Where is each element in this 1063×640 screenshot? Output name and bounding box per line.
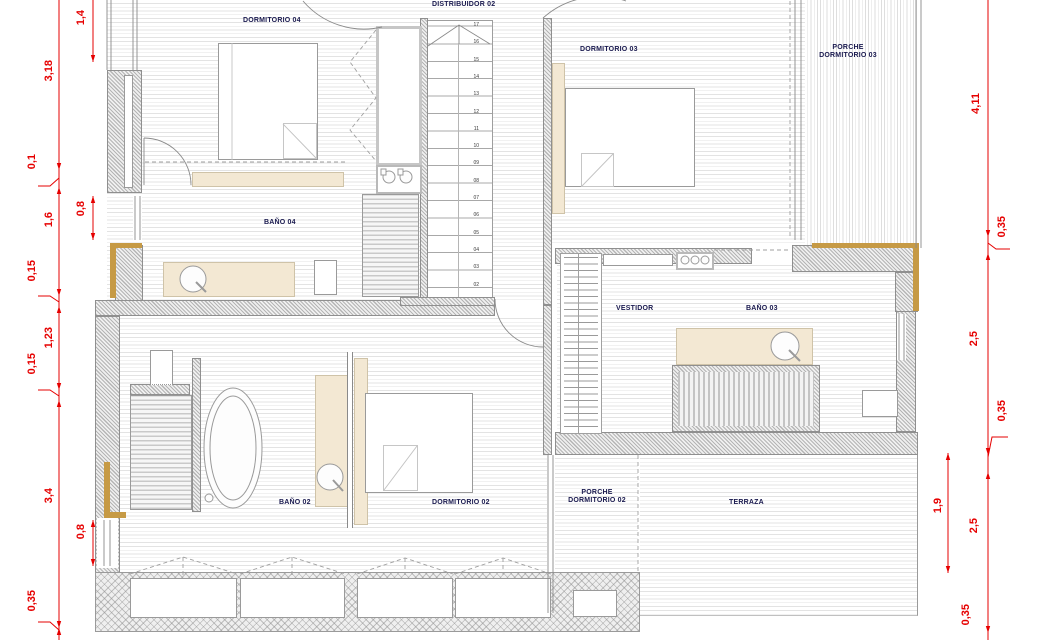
vanity-bano04 [163,262,295,297]
counter-bano03 [603,254,673,266]
dim-left-0-35: 0,35 [26,590,38,611]
floor-terraza [640,455,918,616]
stair-step-numbers: 17161514131211100908070605040302 [425,20,493,301]
stair-step-number: 12 [465,109,479,115]
stair-step-number: 05 [465,230,479,236]
bench-dormitorio04 [192,172,344,187]
label-bano03: BAÑO 03 [746,305,778,312]
wardrobe-vestidor-divider [578,253,579,434]
pillow-dormitorio02 [383,445,418,491]
dim-left-0-8a: 0,8 [75,201,87,216]
dim-left-0-1: 0,1 [26,154,38,169]
label-distribuidor02: DISTRIBUIDOR 02 [432,1,495,8]
dim-right-1-9: 1,9 [932,498,944,513]
wall-porche03-bottom [792,245,918,272]
sink-unit-stair [376,165,422,194]
wall-bano03-bottom [555,432,918,455]
stair-step-number: 02 [465,282,479,288]
label-terraza: TERRAZA [729,499,764,506]
dim-left-3-18: 3,18 [43,60,55,81]
floor-plan: 17161514131211100908070605040302 [0,0,1063,640]
toilet-bano04 [314,260,337,295]
dim-right-0-35c: 0,35 [960,604,972,625]
label-vestidor: VESTIDOR [616,305,653,312]
dim-left-0-15a: 0,15 [26,260,38,281]
shower-bano04 [362,194,419,297]
radiator-bano03 [676,252,714,270]
label-porche-dormitorio02: PORCHE DORMITORIO 02 [557,489,637,505]
shower-bano03 [678,372,814,426]
trim-tan-left-lower-v [104,462,110,518]
glass-partition-bano02 [347,352,353,528]
dim-left-1-6: 1,6 [43,212,55,227]
dim-right-4-11: 4,11 [970,93,982,114]
stair-step-number: 07 [465,195,479,201]
label-dormitorio03: DORMITORIO 03 [580,46,638,53]
stair-step-number: 09 [465,160,479,166]
trim-tan-porche03-v [913,243,919,311]
floor-porche-dormitorio03 [805,0,917,246]
wall-shower02-stub-h [130,384,190,395]
vanity-bano03 [676,328,813,365]
window-box-1 [130,578,237,618]
wall-bano04-left [115,245,143,303]
wall-shower02-stub-v [192,358,201,512]
label-dormitorio02: DORMITORIO 02 [432,499,490,506]
stair-step-number: 06 [465,212,479,218]
vanity-bano02 [315,375,348,507]
window-bano02-left [97,518,118,568]
wardrobe-dormitorio04 [376,26,422,166]
bed-dormitorio02 [365,393,473,493]
trim-tan-porche03-h [812,243,919,248]
toilet-bano03 [862,390,898,417]
pillow-dormitorio03 [581,153,614,187]
trim-tan-left-upper-v [110,243,116,298]
dim-left-1-4: 1,4 [75,10,87,25]
headboard-dormitorio03 [552,63,565,214]
wall-corridor-right [543,305,552,455]
wall-niche [124,75,133,188]
window-bano03-right [897,314,906,360]
stair-step-number: 03 [465,264,479,270]
stair-step-number: 16 [465,39,479,45]
dim-right-0-35b: 0,35 [996,400,1008,421]
sink-bano02 [150,350,173,385]
stair-step-number: 15 [465,57,479,63]
stair-step-number: 04 [465,247,479,253]
floor-porche-dormitorio02 [555,455,638,574]
label-bano04: BAÑO 04 [264,219,296,226]
dim-left-3-4: 3,4 [43,488,55,503]
pillow-dormitorio04 [283,123,317,159]
label-porche-dormitorio03: PORCHE DORMITORIO 03 [808,44,888,60]
window-bano04-left [133,194,142,242]
label-dormitorio04: DORMITORIO 04 [243,17,301,24]
window-box-4 [455,578,551,618]
label-bano02: BAÑO 02 [279,499,311,506]
wardrobe-vestidor-rail [564,257,598,430]
shower-bano02 [130,395,192,510]
stair-step-number: 10 [465,143,479,149]
trim-tan-left-upper-h [110,243,142,248]
stair-step-number: 17 [465,22,479,28]
dim-left-0-15b: 0,15 [26,353,38,374]
dim-right-0-35a: 0,35 [996,216,1008,237]
pillar-porche02 [573,590,617,617]
dim-right-2-5a: 2,5 [968,331,980,346]
stair-step-number: 11 [465,126,479,132]
window-box-3 [357,578,453,618]
dim-left-1-23: 1,23 [43,327,55,348]
dim-left-0-8b: 0,8 [75,524,87,539]
dim-right-2-5b: 2,5 [968,518,980,533]
stair-step-number: 13 [465,91,479,97]
window-box-2 [240,578,345,618]
stair-step-number: 08 [465,178,479,184]
wall-stair-right [543,18,552,305]
stair-step-number: 14 [465,74,479,80]
